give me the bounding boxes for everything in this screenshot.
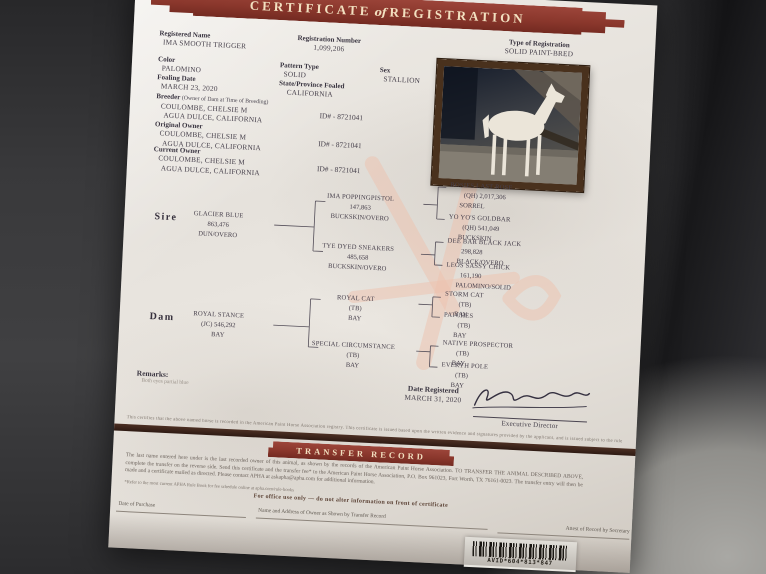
type-of-registration-field: Type of Registration SOLID PAINT-BRED — [463, 36, 616, 61]
breeder-label: Breeder — [156, 92, 180, 101]
foaling-date-field: Foaling Date MARCH 23, 2020 — [157, 73, 219, 93]
title-word-of: of — [374, 5, 387, 19]
remarks-block: Remarks: Both eyes partial blue — [136, 369, 189, 387]
dam-parent-2: SPECIAL CIRCUMSTANCE (TB) BAY — [287, 338, 418, 375]
color-field: Color PALOMINO — [157, 55, 201, 75]
col2-underline — [256, 517, 488, 529]
dam-parent-1: ROYAL CAT (TB) BAY — [289, 291, 420, 328]
sire-parent-2: TYE DYED SNEAKERS 485,658 BUCKSKIN/OVERO — [292, 240, 423, 277]
sire-entry: GLACIER BLUE 863,476 DUN/OVERO — [162, 208, 273, 244]
horse-photo — [431, 59, 589, 192]
current-owner-id: ID# - 8721041 — [317, 164, 361, 175]
sex-value: STALLION — [383, 75, 420, 86]
horse-photo-image — [439, 66, 582, 185]
certificate-paper: CERTIFICATEofREGISTRATION Registered Nam… — [108, 0, 657, 573]
pattern-type-field: Pattern Type SOLID — [279, 61, 319, 80]
title-word-certificate: CERTIFICATE — [249, 0, 371, 18]
photo-background: CERTIFICATEofREGISTRATION Registered Nam… — [0, 0, 766, 574]
breeder-block: Breeder (Owner of Dam at Time of Breedin… — [155, 92, 268, 125]
dam-entry: ROYAL STANCE (JC) 546,292 BAY — [163, 308, 274, 344]
sire-parent-1: IMA POPPINGPISTOL 147,863 BUCKSKIN/OVERO — [294, 190, 425, 227]
sex-field: Sex STALLION — [379, 66, 420, 85]
registered-name-field: Registered Name IMA SMOOTH TRIGGER — [159, 29, 247, 51]
col1-underline — [116, 511, 246, 518]
original-owner-id: ID# - 8721041 — [318, 139, 362, 150]
title-word-registration: REGISTRATION — [389, 4, 526, 26]
avid-barcode-label: AVID*604*813*847 — [464, 537, 577, 572]
breeder-id: ID# - 8721041 — [319, 111, 363, 122]
state-foaled-field: State/Province Foaled CALIFORNIA — [278, 79, 344, 100]
col-date-of-purchase: Date of Purchase — [118, 501, 155, 509]
registration-number-field: Registration Number 1,099,206 — [261, 32, 398, 56]
certificate-title: CERTIFICATEofREGISTRATION — [249, 0, 526, 27]
photo-dark-doorway — [441, 66, 478, 140]
current-owner-block: Current Owner COULOMBE, CHELSIE M AGUA D… — [153, 145, 261, 177]
remarks-value: Both eyes partial blue — [141, 378, 188, 386]
transfer-record-title: TRANSFER RECORD — [296, 445, 426, 461]
